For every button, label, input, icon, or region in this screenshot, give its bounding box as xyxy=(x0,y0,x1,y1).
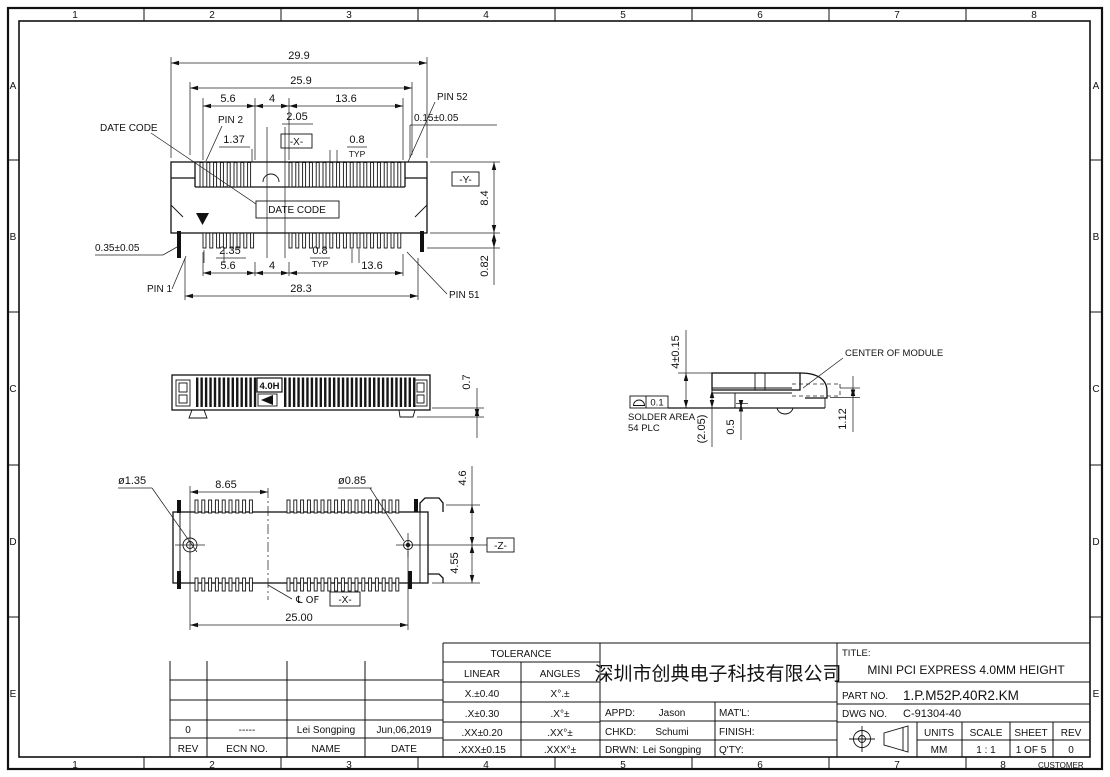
dim-key-width: 2.05 xyxy=(282,111,313,124)
zone-col-bot-4: 4 xyxy=(483,760,489,771)
rev-header-rev: REV xyxy=(178,744,199,755)
dim-0-82-text: 0.82 xyxy=(479,255,491,276)
qty-label: Q'TY: xyxy=(719,745,744,756)
centerline-of-text: ℄ OF xyxy=(295,595,319,606)
zone-col-top-4: 4 xyxy=(483,10,489,21)
tolerance-row1-linear: X.±0.40 xyxy=(465,689,500,700)
scale-value: 1 : 1 xyxy=(976,745,996,756)
dim-8-4-text: 8.4 xyxy=(479,190,491,205)
pin2-label: PIN 2 xyxy=(218,115,243,126)
zone-row-left-c: C xyxy=(9,384,16,395)
zone-col-bot-3: 3 xyxy=(346,760,352,771)
top-view: DATE CODE 29.9 25.9 xyxy=(95,50,500,301)
typ-bot-text: TYP xyxy=(312,259,329,269)
chkd-value: Schumi xyxy=(655,727,688,738)
sheet-label: SHEET xyxy=(1014,728,1047,739)
part-no-label: PART NO. xyxy=(842,691,888,702)
revision-table: 0 ----- Lei Songping Jun,06,2019 REV ECN… xyxy=(170,643,443,757)
dim-0-5-text: 0.5 xyxy=(725,419,737,434)
zone-col-top-8: 8 xyxy=(1031,10,1037,21)
pin51-label: PIN 51 xyxy=(449,290,480,301)
flatness-value-text: 0.1 xyxy=(650,398,663,409)
dim-1-37-text: 1.37 xyxy=(223,134,244,146)
zone-col-bot-6: 6 xyxy=(757,760,763,771)
units-value: MM xyxy=(931,745,948,756)
datum-x-text: -X- xyxy=(290,137,303,148)
pin52-callout: PIN 52 0.15±0.05 xyxy=(408,92,497,162)
company-name: 深圳市创典电子科技有限公司 xyxy=(594,663,841,685)
dwg-no-value: C-91304-40 xyxy=(903,708,961,720)
dim-0-35-text: 0.35±0.05 xyxy=(95,243,140,254)
rev-entry-ecn: ----- xyxy=(239,725,256,736)
tolerance-row2-angle: .X°± xyxy=(551,709,570,720)
zone-col-top-3: 3 xyxy=(346,10,352,21)
datum-y-text: -Y- xyxy=(459,175,471,186)
dim-pin-width: 1.37 xyxy=(219,134,252,162)
title-label: TITLE: xyxy=(842,648,871,659)
drwn-label: DRWN: xyxy=(605,745,639,756)
dim-5-6-bot-text: 5.6 xyxy=(220,260,235,272)
drawing-title: MINI PCI EXPRESS 4.0MM HEIGHT xyxy=(867,663,1065,677)
dim-25-00-text: 25.00 xyxy=(285,612,313,624)
pin1-callout: PIN 1 xyxy=(147,256,186,295)
dim-segments-top: 5.6 4 13.6 xyxy=(203,93,403,160)
dim-tail-width: 0.35±0.05 xyxy=(95,243,177,255)
units-label: UNITS xyxy=(924,728,954,739)
zone-row-left-d: D xyxy=(9,537,16,548)
part-no-value: 1.P.M52P.40R2.KM xyxy=(903,688,1019,703)
projection-angle-icon xyxy=(849,726,908,752)
dim-29-9-text: 29.9 xyxy=(288,50,309,62)
dim-2-05-text: 2.05 xyxy=(286,111,307,123)
zone-row-right-b: B xyxy=(1093,232,1100,243)
tolerance-row4-linear: .XXX±0.15 xyxy=(458,745,506,756)
pin52-label: PIN 52 xyxy=(437,92,468,103)
zone-row-left-a: A xyxy=(10,81,17,92)
company-block: 深圳市创典电子科技有限公司 APPD: Jason MAT'L: CHKD: S… xyxy=(594,643,841,757)
pin1-label: PIN 1 xyxy=(147,284,172,295)
dim-4-6-text: 4.6 xyxy=(457,470,469,485)
dim-1-12-text: 1.12 xyxy=(837,408,849,429)
bottom-view-pins-lower-left xyxy=(195,578,252,591)
dim-pitch-top: 0.8 TYP xyxy=(330,134,367,163)
dim-13-6-bot-text: 13.6 xyxy=(361,260,382,272)
dim-module-height: 4±0.15 xyxy=(670,330,712,408)
front-view: 4.0H 0.7 xyxy=(172,374,484,438)
zone-row-right-a: A xyxy=(1093,81,1100,92)
dim-5-6-top-text: 5.6 xyxy=(220,93,235,105)
dim-8-65-text: 8.65 xyxy=(215,479,236,491)
title-block: TITLE: MINI PCI EXPRESS 4.0MM HEIGHT PAR… xyxy=(837,643,1090,757)
dim-2-35-text: 2.35 xyxy=(219,245,240,257)
matl-label: MAT'L: xyxy=(719,708,750,719)
flatness-symbol-icon xyxy=(634,400,645,406)
appd-label: APPD: xyxy=(605,708,635,719)
tolerance-row3-linear: .XX±0.20 xyxy=(461,728,503,739)
datum-x: -X- xyxy=(281,134,312,148)
dim-0-8-top-text: 0.8 xyxy=(349,134,364,146)
date-code-box-label: DATE CODE xyxy=(268,205,326,216)
chkd-label: CHKD: xyxy=(605,727,636,738)
rev-entry-rev: 0 xyxy=(185,725,191,736)
dia-1-35-text: ø1.35 xyxy=(118,475,146,487)
tolerance-row2-linear: .X±0.30 xyxy=(465,709,500,720)
dim-4-55-text: 4.55 xyxy=(449,552,461,573)
tolerance-table: TOLERANCE LINEAR ANGLES X.±0.40 X°.± .X±… xyxy=(443,643,600,757)
zone-col-bot-8: 8 xyxy=(1000,760,1006,771)
date-code-label: DATE CODE xyxy=(100,123,158,134)
zone-col-top-6: 6 xyxy=(757,10,763,21)
tolerance-title: TOLERANCE xyxy=(491,649,552,660)
front-view-contacts-right xyxy=(284,378,415,408)
customer-label: CUSTOMER xyxy=(1038,761,1084,770)
top-view-pins-lower-right xyxy=(289,233,401,248)
pin1-triangle-marker xyxy=(196,213,209,225)
rev-value: 0 xyxy=(1068,745,1074,756)
zone-col-bot-2: 2 xyxy=(209,760,215,771)
front-view-contacts-left xyxy=(196,378,256,408)
flatness-callout: 0.1 SOLDER AREA 54 PLC xyxy=(628,396,696,434)
height-code-badge: 4.0H xyxy=(257,378,282,406)
dim-0-8-bot-text: 0.8 xyxy=(312,245,327,257)
dim-25-9-text: 25.9 xyxy=(290,75,311,87)
tolerance-linear-header: LINEAR xyxy=(464,669,500,680)
zone-row-left-b: B xyxy=(10,232,17,243)
rev-header-ecn: ECN NO. xyxy=(226,744,268,755)
side-view: 4±0.15 CENTER OF MODULE 0.1 SOLDER AREA … xyxy=(628,330,943,447)
dim-standoff-0-5: 0.5 xyxy=(725,404,748,441)
dim-0-15-text: 0.15±0.05 xyxy=(414,113,459,124)
solder-area-plc-text: 54 PLC xyxy=(628,423,660,434)
dim-4-top-text: 4 xyxy=(269,93,275,105)
drwn-value: Lei Songping xyxy=(643,745,701,756)
zone-col-bot-1: 1 xyxy=(72,760,78,771)
bottom-view: ø1.35 8.65 ø0.85 4.6 4.55 -Z- xyxy=(118,466,514,630)
rev-header-date: DATE xyxy=(391,744,417,755)
dim-vertical-right: 4.6 4.55 -Z- xyxy=(412,466,514,583)
tolerance-angles-header: ANGLES xyxy=(540,669,581,680)
bottom-view-pins-upper-left xyxy=(195,500,252,513)
zone-col-bot-5: 5 xyxy=(620,760,626,771)
zone-col-top-2: 2 xyxy=(209,10,215,21)
dim-4-text: 4±0.15 xyxy=(670,335,682,369)
rev-header-name: NAME xyxy=(312,744,341,755)
zone-col-top-1: 1 xyxy=(72,10,78,21)
rev-label: REV xyxy=(1061,728,1082,739)
tolerance-row3-angle: .XX°± xyxy=(547,728,573,739)
zone-row-right-d: D xyxy=(1092,537,1099,548)
polarity-triangle-icon xyxy=(261,395,273,405)
solder-area-text: SOLDER AREA xyxy=(628,412,696,423)
dim-4-bot-text: 4 xyxy=(269,260,275,272)
dim-0-7-text: 0.7 xyxy=(461,374,473,389)
datum-z-text: -Z- xyxy=(494,541,507,552)
typ-top-text: TYP xyxy=(349,149,366,159)
top-view-pins-upper-right xyxy=(289,163,401,188)
zone-labels: 1 2 3 4 5 6 7 8 1 2 3 4 5 6 7 8 CUSTOMER… xyxy=(9,10,1099,771)
center-of-module-label: CENTER OF MODULE xyxy=(845,348,943,359)
drawing-canvas: 1 2 3 4 5 6 7 8 1 2 3 4 5 6 7 8 CUSTOMER… xyxy=(0,0,1110,777)
bottom-view-pins-lower-right xyxy=(287,578,399,591)
zone-col-top-7: 7 xyxy=(894,10,900,21)
drawing-sheet: 1 2 3 4 5 6 7 8 1 2 3 4 5 6 7 8 CUSTOMER… xyxy=(0,0,1110,777)
datum-x-ref-text: -X- xyxy=(338,595,351,606)
dim-13-6-top-text: 13.6 xyxy=(335,93,356,105)
scale-label: SCALE xyxy=(970,728,1003,739)
zone-row-right-c: C xyxy=(1092,384,1099,395)
height-code-text: 4.0H xyxy=(259,381,279,392)
rev-entry-date: Jun,06,2019 xyxy=(376,725,431,736)
zone-row-right-e: E xyxy=(1093,689,1100,700)
zone-col-top-5: 5 xyxy=(620,10,626,21)
zone-col-bot-7: 7 xyxy=(894,760,900,771)
dim-28-3-text: 28.3 xyxy=(290,283,311,295)
dim-pitch-bottom: 0.8 TYP xyxy=(310,245,359,269)
zone-row-left-e: E xyxy=(10,689,17,700)
dim-2-05-ref-text: (2.05) xyxy=(696,415,708,444)
finish-label: FINISH: xyxy=(719,727,755,738)
rev-entry-name: Lei Songping xyxy=(297,725,355,736)
appd-value: Jason xyxy=(659,708,686,719)
tolerance-row4-angle: .XXX°± xyxy=(544,745,577,756)
dia-0-85-text: ø0.85 xyxy=(338,475,366,487)
dwg-no-label: DWG NO. xyxy=(842,709,887,720)
dim-ref-height: (2.05) xyxy=(696,390,712,447)
sheet-value: 1 OF 5 xyxy=(1016,745,1047,756)
tolerance-row1-angle: X°.± xyxy=(551,689,570,700)
datum-y: -Y- xyxy=(452,172,479,186)
